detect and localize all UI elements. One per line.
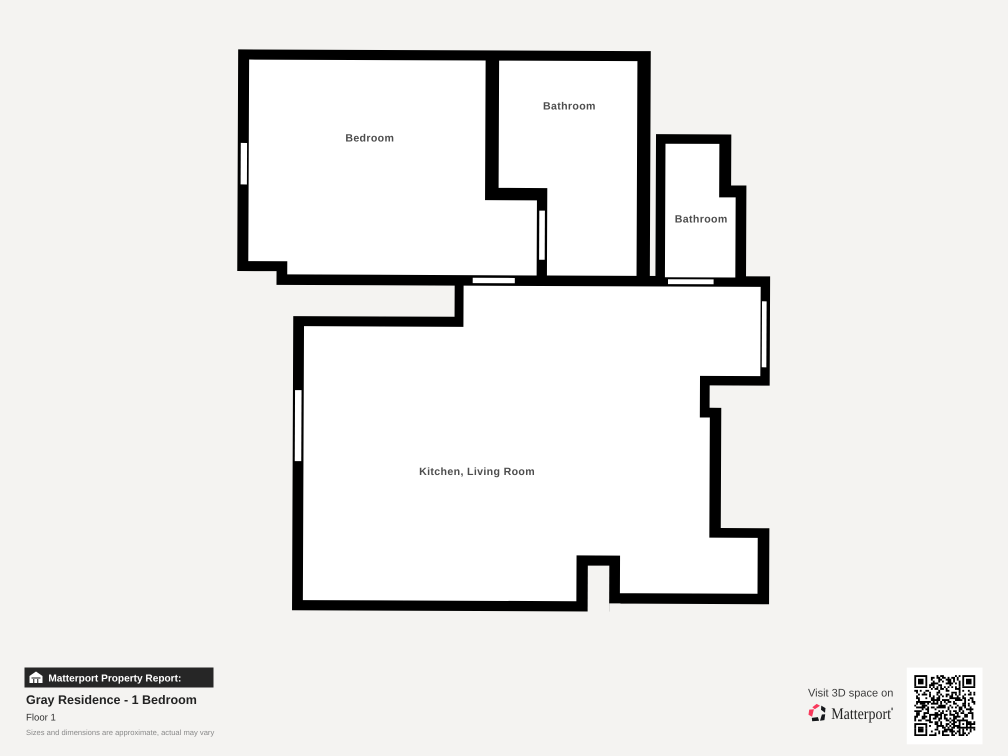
svg-text:Gray Residence - 1 Bedroom: Gray Residence - 1 Bedroom — [26, 693, 197, 707]
svg-text:Floor 1: Floor 1 — [26, 712, 56, 723]
svg-text:Kitchen, Living Room: Kitchen, Living Room — [419, 466, 535, 478]
svg-text:Matterport: Matterport — [831, 704, 891, 723]
svg-text:Sizes and dimensions are appro: Sizes and dimensions are approximate, ac… — [26, 728, 214, 737]
svg-text:Matterport Property Report:: Matterport Property Report: — [48, 673, 181, 684]
svg-text:Bedroom: Bedroom — [345, 133, 394, 145]
svg-text:Bathroom: Bathroom — [543, 100, 596, 112]
svg-text:Visit 3D space on: Visit 3D space on — [808, 687, 893, 699]
svg-text:Bathroom: Bathroom — [675, 213, 728, 225]
